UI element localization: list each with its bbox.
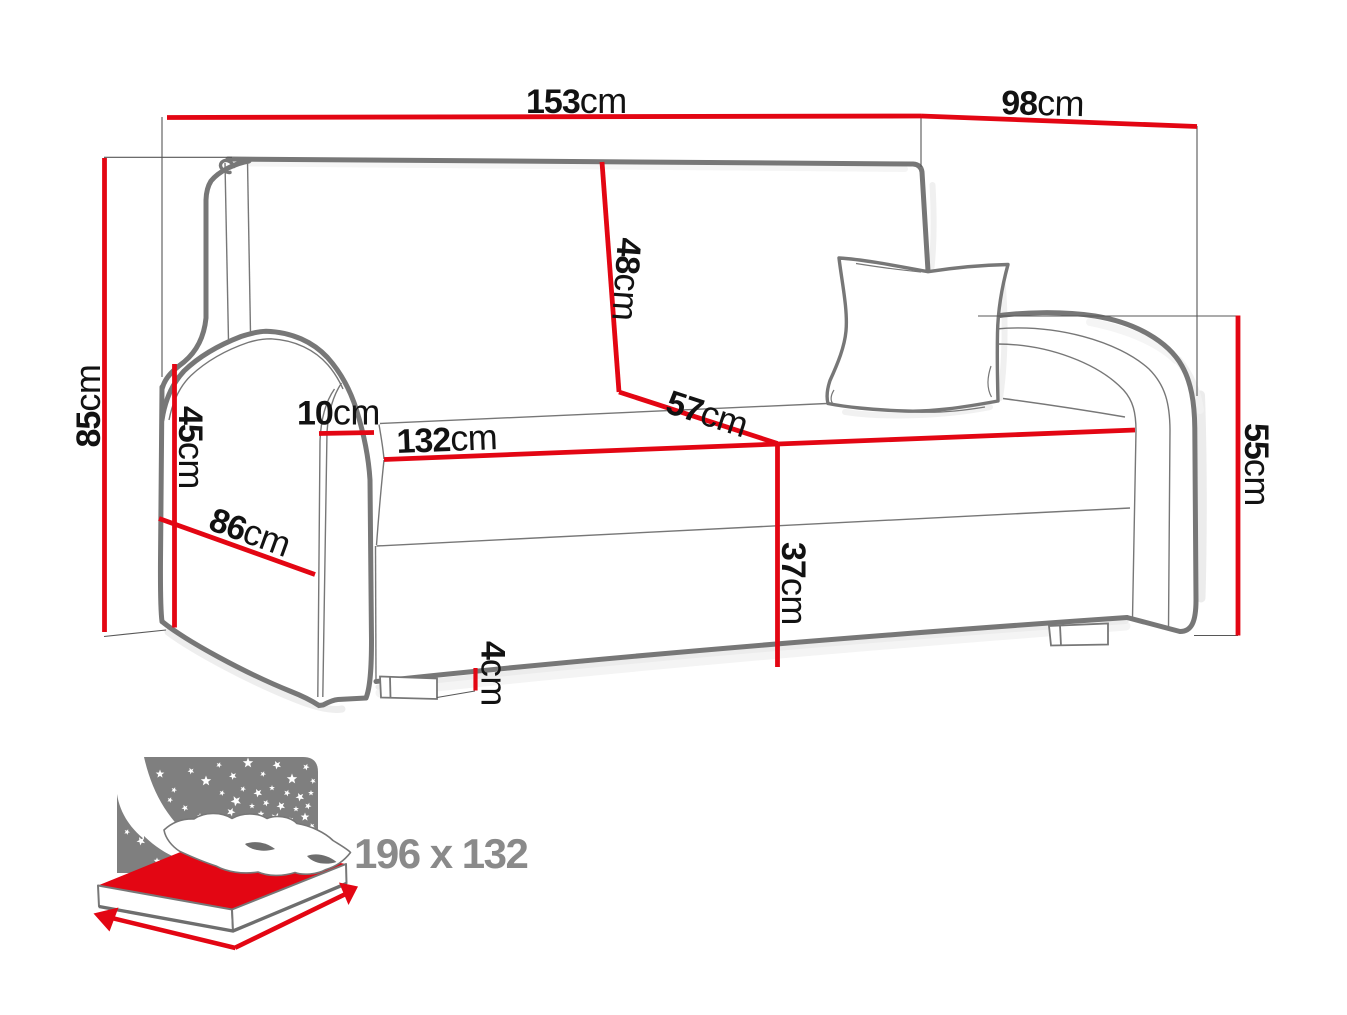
svg-text:132cm: 132cm [396, 416, 498, 461]
svg-text:45cm: 45cm [171, 406, 212, 489]
svg-text:37cm: 37cm [774, 542, 815, 625]
svg-text:55cm: 55cm [1237, 423, 1278, 506]
svg-text:153cm: 153cm [526, 80, 627, 121]
svg-text:4cm: 4cm [474, 641, 515, 706]
svg-text:196 x 132: 196 x 132 [354, 830, 527, 877]
svg-text:10cm: 10cm [297, 392, 380, 433]
svg-text:48cm: 48cm [604, 236, 651, 321]
svg-text:98cm: 98cm [1001, 81, 1085, 124]
svg-text:85cm: 85cm [67, 365, 108, 448]
